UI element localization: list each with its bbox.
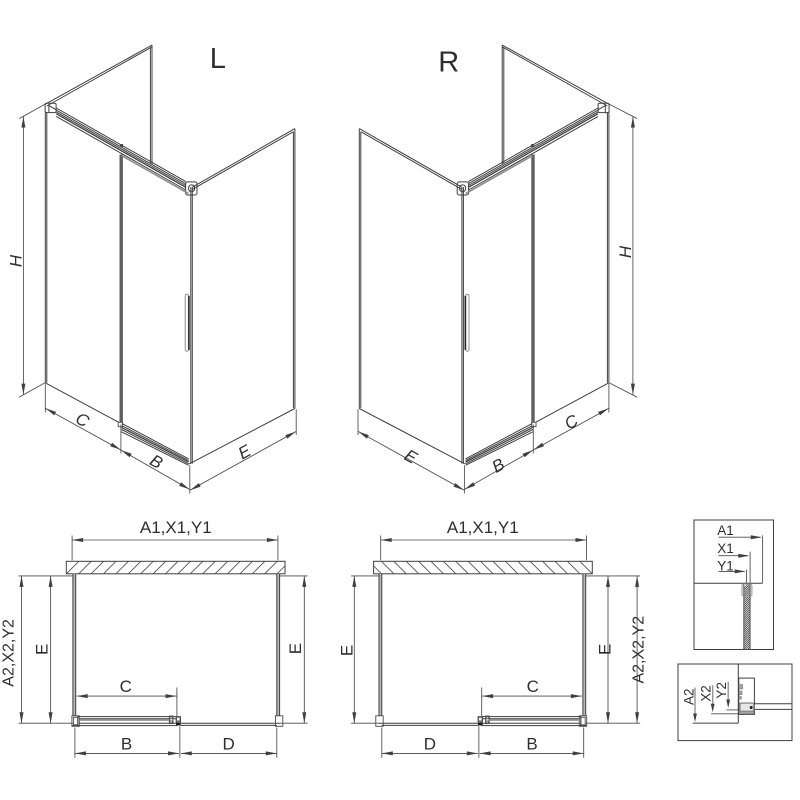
svg-text:E: E: [235, 441, 255, 463]
svg-text:X2: X2: [699, 685, 714, 702]
svg-text:E: E: [33, 644, 52, 655]
svg-text:B: B: [121, 735, 132, 754]
svg-text:B: B: [147, 451, 166, 473]
svg-text:E: E: [595, 644, 614, 655]
svg-text:C: C: [72, 409, 93, 432]
svg-text:Y1: Y1: [717, 558, 734, 573]
svg-text:C: C: [120, 677, 132, 696]
svg-text:Y2: Y2: [714, 682, 729, 699]
svg-text:C: C: [561, 411, 582, 434]
svg-text:B: B: [526, 735, 537, 754]
svg-text:H: H: [6, 254, 25, 267]
svg-text:L: L: [210, 43, 226, 75]
svg-text:A2,X2,Y2: A2,X2,Y2: [631, 616, 648, 684]
svg-text:A1: A1: [717, 523, 734, 538]
svg-text:X1: X1: [717, 541, 734, 556]
svg-text:D: D: [424, 735, 436, 754]
svg-text:C: C: [527, 677, 539, 696]
svg-text:H: H: [616, 245, 635, 258]
svg-text:A2: A2: [681, 688, 696, 705]
svg-text:R: R: [438, 47, 459, 79]
svg-text:E: E: [286, 643, 305, 654]
svg-text:A1,X1,Y1: A1,X1,Y1: [140, 518, 212, 537]
svg-text:B: B: [489, 455, 508, 477]
svg-text:A2,X2,Y2: A2,X2,Y2: [1, 619, 18, 687]
svg-text:D: D: [223, 735, 235, 754]
svg-text:A1,X1,Y1: A1,X1,Y1: [447, 518, 519, 537]
svg-text:E: E: [337, 645, 356, 656]
